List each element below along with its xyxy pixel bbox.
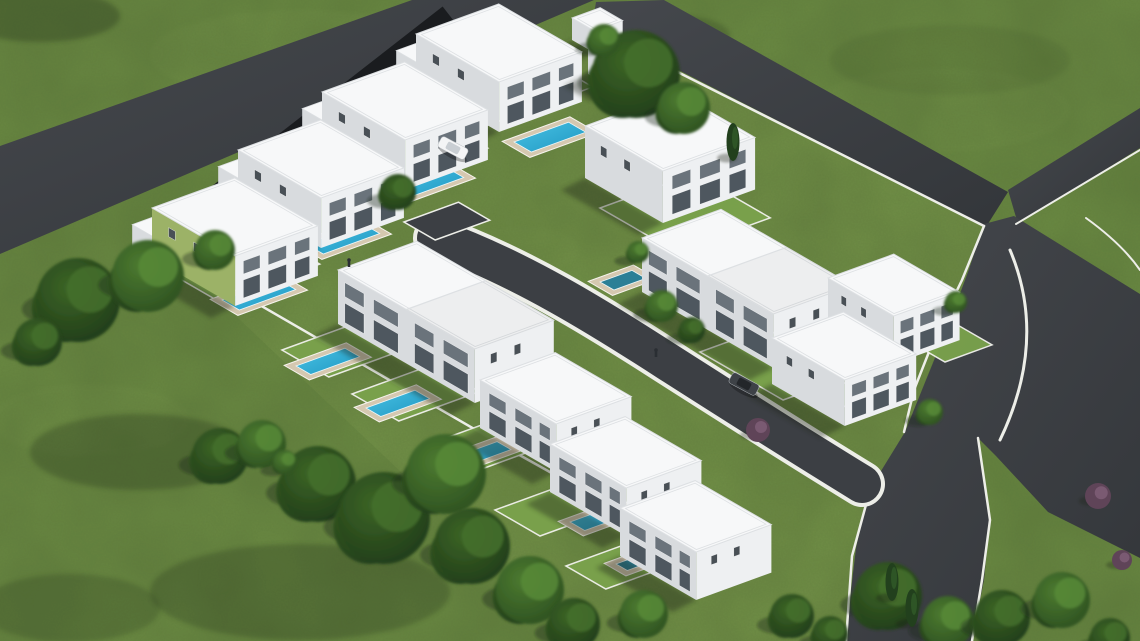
- person-1: [347, 258, 351, 267]
- aerial-render-residential-development: [0, 0, 1140, 641]
- person-2: [654, 348, 658, 357]
- scene-canvas: [0, 0, 1140, 641]
